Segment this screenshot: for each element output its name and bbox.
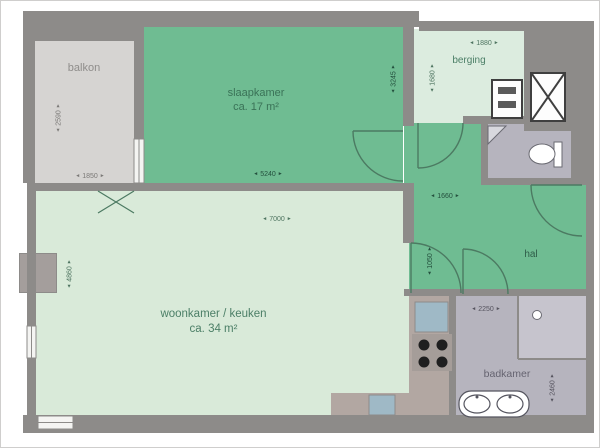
wall-wc-bottom: [481, 178, 571, 185]
room-woonkamer: [36, 191, 409, 415]
column-block: [19, 253, 57, 293]
floor-plan: balkon slaapkamer ca. 17 m² berging hal …: [0, 0, 600, 448]
wall-hal-badkamer: [404, 289, 594, 296]
kitchen-counter-bottom: [331, 393, 456, 415]
meter-bar: [498, 87, 516, 94]
shaft-icon: [530, 72, 566, 122]
wall-woonkamer-hal: [403, 183, 414, 243]
wall-balkon-slaapkamer: [134, 27, 144, 183]
wall-left-lower: [27, 183, 36, 433]
wall-kitchen-badkamer: [449, 296, 456, 417]
wall-wc-left: [481, 123, 488, 178]
wall-right-outer: [586, 29, 594, 433]
wall-left-upper: [23, 41, 35, 183]
wall-top-balkon: [23, 11, 144, 41]
wall-top-slaapkamer: [144, 11, 419, 27]
wall-wc-right: [571, 123, 586, 185]
room-balkon: [33, 41, 134, 183]
room-wc: [488, 123, 571, 178]
meter-cabinet-icon: [491, 79, 523, 119]
room-slaapkamer: [144, 27, 403, 183]
wall-mid-horizontal: [27, 183, 414, 191]
meter-bar: [498, 101, 516, 108]
wall-bottom: [23, 415, 594, 433]
wall-slaapkamer-hal: [403, 27, 414, 126]
shower-zone: [518, 296, 586, 359]
